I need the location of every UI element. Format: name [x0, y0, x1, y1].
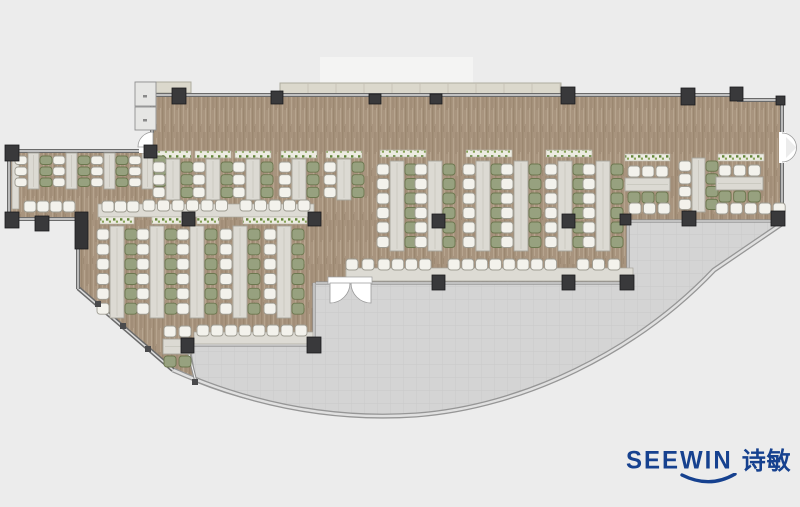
chair — [179, 326, 191, 337]
chair — [378, 259, 390, 270]
chair — [730, 203, 742, 214]
floor-plan-stage: SEEWIN 诗敏 — [0, 0, 800, 507]
chair — [125, 288, 137, 299]
chair — [734, 191, 746, 202]
chair — [233, 187, 245, 197]
chair — [307, 162, 319, 172]
chair — [91, 156, 103, 165]
structural-column — [562, 214, 575, 228]
chair — [187, 200, 199, 211]
chair — [40, 178, 52, 187]
chair — [267, 325, 279, 336]
chair — [53, 178, 65, 187]
chair — [463, 222, 475, 233]
chair — [216, 200, 228, 211]
chair — [545, 259, 557, 270]
chair — [205, 288, 217, 299]
chair — [583, 208, 595, 219]
planter-box — [380, 150, 426, 157]
service-shaft — [75, 212, 88, 249]
structural-column — [35, 216, 49, 231]
chair — [463, 193, 475, 204]
chair — [165, 259, 177, 270]
exterior-elements — [137, 57, 561, 95]
chair — [261, 175, 273, 185]
chair — [78, 178, 90, 187]
door-handle — [143, 119, 147, 122]
chair — [489, 259, 501, 270]
chair — [583, 237, 595, 248]
chair — [307, 175, 319, 185]
chair — [177, 288, 189, 299]
chair — [177, 303, 189, 314]
chair — [193, 162, 205, 172]
entry-door-panel — [135, 107, 156, 130]
chair — [529, 193, 541, 204]
chair — [593, 259, 605, 270]
chair — [324, 187, 336, 197]
chair — [37, 201, 49, 212]
chair — [611, 193, 623, 204]
chair — [220, 303, 232, 314]
chair — [248, 229, 260, 240]
chair — [529, 164, 541, 175]
structural-column — [172, 88, 186, 104]
chair — [352, 187, 364, 197]
chair — [529, 237, 541, 248]
chair — [745, 203, 757, 214]
structural-column — [432, 275, 445, 290]
chair — [233, 162, 245, 172]
chair — [97, 229, 109, 240]
chair — [405, 259, 417, 270]
chair — [281, 325, 293, 336]
chair — [658, 203, 670, 214]
chair — [716, 203, 728, 214]
chair — [415, 164, 427, 175]
chair — [377, 179, 389, 190]
facade-post — [95, 301, 101, 307]
chair — [352, 162, 364, 172]
chair — [50, 201, 62, 212]
chair — [501, 179, 513, 190]
chair — [292, 229, 304, 240]
chair — [295, 325, 307, 336]
chair — [221, 175, 233, 185]
chair — [181, 175, 193, 185]
door-gap — [779, 132, 786, 163]
chair — [415, 237, 427, 248]
chair — [220, 229, 232, 240]
structural-column — [5, 212, 19, 228]
chair — [233, 175, 245, 185]
chair — [127, 201, 139, 212]
chair — [517, 259, 529, 270]
chair — [501, 164, 513, 175]
chair — [220, 274, 232, 285]
chair — [292, 259, 304, 270]
structural-column — [682, 211, 696, 226]
entry-panel — [135, 82, 156, 130]
chair — [748, 191, 760, 202]
structural-column — [308, 212, 321, 226]
structural-column — [432, 214, 445, 228]
chair — [137, 303, 149, 314]
chair — [545, 222, 557, 233]
structural-column — [561, 87, 575, 104]
chair — [165, 288, 177, 299]
structural-column — [620, 275, 634, 290]
chair — [102, 201, 114, 212]
chair — [269, 200, 281, 211]
chair — [24, 201, 36, 212]
planter-box — [625, 154, 670, 161]
chair — [545, 237, 557, 248]
chair — [279, 187, 291, 197]
chair — [679, 161, 691, 171]
chair — [97, 288, 109, 299]
chair — [656, 166, 668, 177]
chair — [419, 259, 431, 270]
chair — [53, 156, 65, 165]
structural-column — [307, 337, 321, 353]
facade-post — [192, 379, 198, 385]
chair — [255, 200, 267, 211]
planter-box — [197, 217, 219, 224]
structural-column — [430, 94, 442, 104]
chair — [462, 259, 474, 270]
chair — [225, 325, 237, 336]
chair — [115, 201, 127, 212]
chair — [531, 259, 543, 270]
chair — [346, 259, 358, 270]
chair — [392, 259, 404, 270]
chair — [264, 244, 276, 255]
chair — [656, 192, 668, 203]
chair — [177, 229, 189, 240]
chair — [352, 175, 364, 185]
chair — [324, 175, 336, 185]
chair — [116, 167, 128, 176]
chair — [415, 208, 427, 219]
chair — [181, 162, 193, 172]
planter-box — [546, 150, 592, 157]
chair — [221, 187, 233, 197]
chair — [193, 175, 205, 185]
chair — [719, 165, 731, 176]
chair — [205, 303, 217, 314]
chair — [193, 187, 205, 197]
chair — [261, 187, 273, 197]
chair — [443, 164, 455, 175]
chair — [748, 165, 760, 176]
chair — [279, 162, 291, 172]
chair — [248, 259, 260, 270]
skylight-patch — [320, 57, 473, 84]
chair — [264, 303, 276, 314]
chair — [153, 162, 165, 172]
planter-box — [152, 217, 182, 224]
chair — [125, 259, 137, 270]
structural-column — [271, 91, 283, 104]
chair — [415, 179, 427, 190]
chair — [583, 222, 595, 233]
chair — [415, 222, 427, 233]
chair — [63, 201, 75, 212]
chair — [165, 303, 177, 314]
chair — [91, 178, 103, 187]
brand-swoosh-icon — [680, 473, 738, 485]
chair — [248, 244, 260, 255]
chair — [137, 229, 149, 240]
chair — [628, 166, 640, 177]
structural-column — [681, 88, 695, 105]
chair — [181, 187, 193, 197]
chair — [298, 200, 310, 211]
chair — [137, 288, 149, 299]
planter-box — [281, 151, 317, 158]
chair — [503, 259, 515, 270]
structural-column — [369, 94, 381, 104]
chair — [362, 259, 374, 270]
chair — [415, 193, 427, 204]
chair — [448, 259, 460, 270]
chair — [164, 326, 176, 337]
chair — [179, 356, 191, 367]
chair — [501, 237, 513, 248]
chair — [545, 208, 557, 219]
chair — [307, 187, 319, 197]
structural-column — [182, 212, 195, 226]
chair — [463, 164, 475, 175]
chair — [165, 274, 177, 285]
chair — [15, 167, 27, 176]
chair — [577, 259, 589, 270]
chair — [279, 175, 291, 185]
chair — [261, 162, 273, 172]
chair — [116, 156, 128, 165]
chair — [248, 288, 260, 299]
chair — [143, 200, 155, 211]
structural-column — [562, 275, 575, 290]
planter-box — [195, 151, 231, 158]
chair — [221, 162, 233, 172]
chair — [463, 179, 475, 190]
chair — [153, 187, 165, 197]
chair — [239, 325, 251, 336]
chair — [220, 259, 232, 270]
chair — [220, 244, 232, 255]
chair — [443, 237, 455, 248]
chair — [264, 259, 276, 270]
chair — [205, 244, 217, 255]
chair — [205, 274, 217, 285]
chair — [629, 203, 641, 214]
chair — [377, 222, 389, 233]
chair — [284, 200, 296, 211]
brand-chinese-name: 诗敏 — [742, 449, 792, 474]
chair — [97, 274, 109, 285]
chair — [529, 208, 541, 219]
chair — [583, 179, 595, 190]
chair — [197, 325, 209, 336]
chair — [91, 167, 103, 176]
chair — [129, 178, 141, 187]
chair — [545, 179, 557, 190]
chair — [628, 192, 640, 203]
chair — [158, 200, 170, 211]
planter-box — [466, 150, 512, 157]
chair — [501, 193, 513, 204]
chair — [377, 237, 389, 248]
chair — [529, 222, 541, 233]
chair — [40, 167, 52, 176]
chair — [201, 200, 213, 211]
chair — [463, 208, 475, 219]
chair — [292, 288, 304, 299]
planter-box — [235, 151, 271, 158]
chair — [679, 174, 691, 184]
chair — [377, 164, 389, 175]
chair — [611, 179, 623, 190]
chair — [177, 259, 189, 270]
door-handle — [143, 95, 147, 98]
chair — [211, 325, 223, 336]
chair — [153, 175, 165, 185]
chair — [679, 187, 691, 197]
structural-column — [771, 211, 785, 226]
chair — [377, 193, 389, 204]
chair — [129, 167, 141, 176]
chair — [129, 156, 141, 165]
chair — [165, 244, 177, 255]
chair — [116, 178, 128, 187]
chair — [205, 259, 217, 270]
chair — [177, 274, 189, 285]
office-floor-plan — [0, 0, 800, 507]
chair — [164, 356, 176, 367]
chair — [324, 162, 336, 172]
facade-post — [120, 323, 126, 329]
chair — [15, 178, 27, 187]
chair — [529, 179, 541, 190]
chair — [264, 288, 276, 299]
chair — [545, 193, 557, 204]
chair — [463, 237, 475, 248]
chair — [583, 193, 595, 204]
chair — [125, 303, 137, 314]
chair — [220, 288, 232, 299]
chair — [248, 303, 260, 314]
structural-column — [5, 145, 19, 161]
chair — [719, 191, 731, 202]
chair — [264, 229, 276, 240]
chair — [78, 167, 90, 176]
chair — [501, 222, 513, 233]
planter-box — [100, 217, 134, 224]
chair — [443, 179, 455, 190]
chair — [78, 156, 90, 165]
chair — [679, 199, 691, 209]
chair — [611, 164, 623, 175]
chair — [240, 200, 252, 211]
chair — [734, 165, 746, 176]
planter-box — [326, 151, 362, 158]
facade-post — [145, 346, 151, 352]
chair — [292, 274, 304, 285]
chair — [644, 203, 656, 214]
chair — [125, 244, 137, 255]
chair — [137, 274, 149, 285]
chair — [137, 259, 149, 270]
chair — [97, 259, 109, 270]
chair — [583, 164, 595, 175]
entry-door-panel — [135, 82, 156, 106]
planter-box — [243, 217, 307, 224]
chair — [248, 274, 260, 285]
structural-column — [144, 145, 157, 158]
chair — [608, 259, 620, 270]
chair — [292, 303, 304, 314]
chair — [377, 208, 389, 219]
chair — [476, 259, 488, 270]
chair — [264, 274, 276, 285]
structural-column — [620, 214, 631, 225]
chair — [611, 237, 623, 248]
chair — [443, 193, 455, 204]
chair — [642, 166, 654, 177]
chair — [40, 156, 52, 165]
chair — [165, 229, 177, 240]
brand-logo: SEEWIN 诗敏 — [626, 449, 798, 487]
chair — [172, 200, 184, 211]
chair — [137, 244, 149, 255]
chair — [125, 229, 137, 240]
chair — [125, 274, 137, 285]
chair — [545, 164, 557, 175]
chair — [501, 208, 513, 219]
structural-column — [181, 338, 194, 353]
chair — [642, 192, 654, 203]
chair — [706, 161, 718, 171]
brand-wordmark: SEEWIN — [626, 449, 733, 474]
structural-column — [730, 87, 743, 101]
chair — [292, 244, 304, 255]
chair — [253, 325, 265, 336]
chair — [205, 229, 217, 240]
chair — [759, 203, 771, 214]
planter-box — [718, 154, 764, 161]
chair — [53, 167, 65, 176]
structural-column — [776, 96, 785, 105]
chair — [97, 244, 109, 255]
chair — [177, 244, 189, 255]
